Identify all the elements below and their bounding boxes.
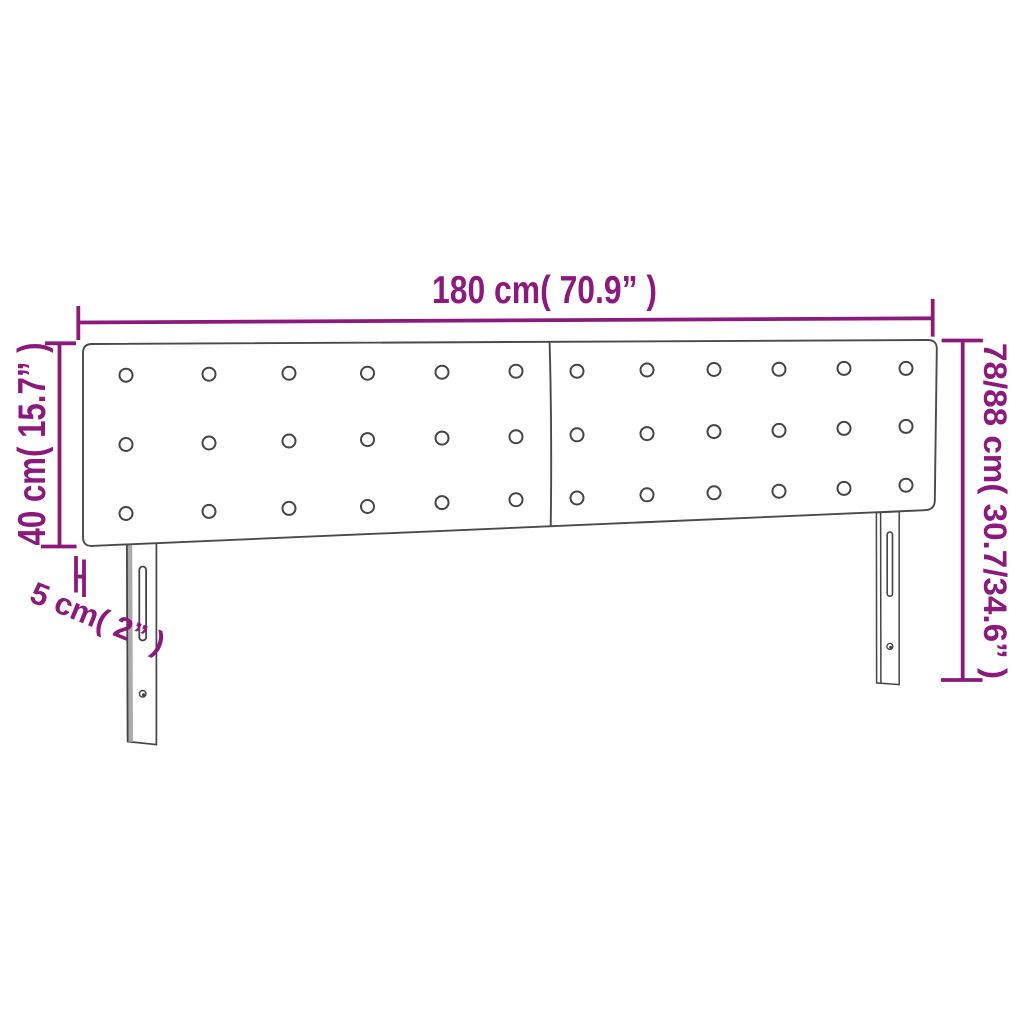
svg-text:78/88 cm( 30.7/34.6” ): 78/88 cm( 30.7/34.6” ) (977, 343, 1013, 679)
svg-text:180 cm( 70.9” ): 180 cm( 70.9” ) (432, 269, 657, 312)
svg-text:40 cm( 15.7” ): 40 cm( 15.7” ) (11, 343, 54, 546)
